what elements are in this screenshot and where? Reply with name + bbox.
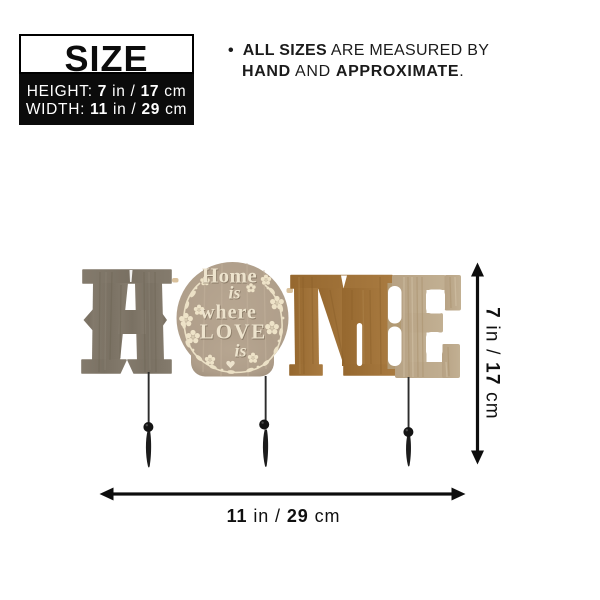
svg-text:is: is (228, 283, 240, 303)
svg-text:7 in / 17 cm: 7 in / 17 cm (482, 307, 503, 420)
svg-text:11 in / 29 cm: 11 in / 29 cm (227, 506, 341, 526)
svg-text:is: is (234, 341, 246, 361)
